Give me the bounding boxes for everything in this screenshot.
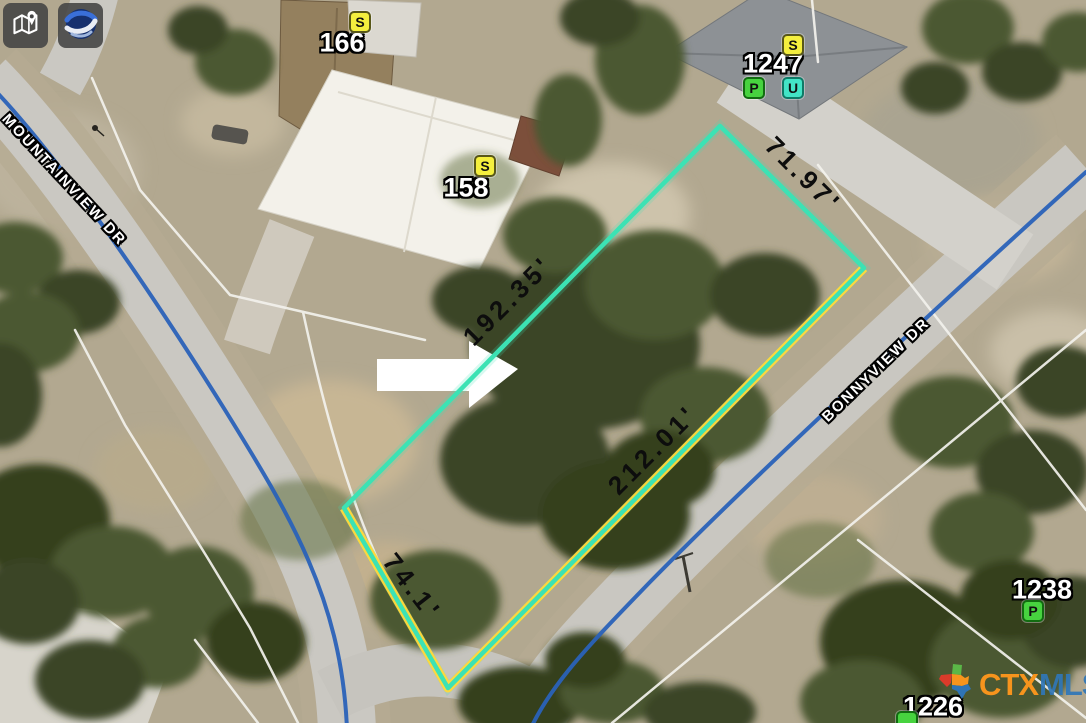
ctx-mls-watermark: CTX MLS <box>938 662 1086 707</box>
status-badge-s-158: S <box>474 155 496 177</box>
status-badge-s-166: S <box>349 11 371 33</box>
aerial-photo <box>0 0 1086 723</box>
partial-badge-1226 <box>896 711 918 723</box>
texas-logo-icon <box>938 662 978 707</box>
status-badge-p-1247: P <box>743 77 765 99</box>
map-layers-button[interactable] <box>3 3 48 48</box>
aerial-map-view: 166 S 158 S 1247 S P U 1238 P 1226 71.97… <box>0 0 1086 723</box>
google-earth-button[interactable] <box>58 3 103 48</box>
ctx-wordmark: CTX <box>979 667 1038 703</box>
mls-wordmark: MLS <box>1039 667 1086 703</box>
map-layers-pin-icon <box>11 9 41 42</box>
status-badge-u-1247: U <box>782 77 804 99</box>
address-label-158: 158 <box>443 173 488 204</box>
google-earth-icon <box>64 7 98 44</box>
status-badge-s-1247: S <box>782 34 804 56</box>
status-badge-p-1238: P <box>1022 600 1044 622</box>
